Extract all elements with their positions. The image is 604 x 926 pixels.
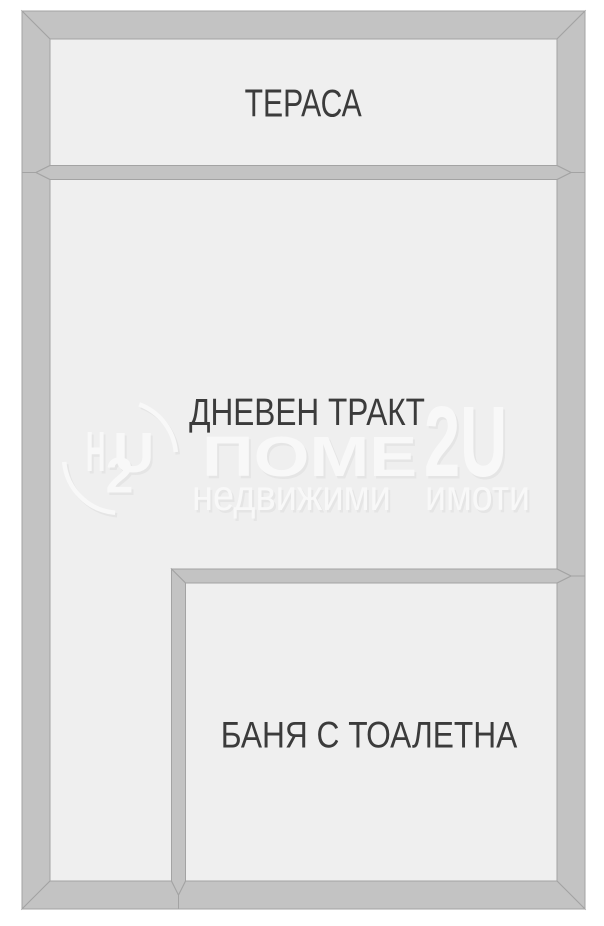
- svg-text:ТЕРАСА: ТЕРАСА: [245, 82, 363, 126]
- svg-text:имоти: имоти: [425, 471, 530, 520]
- svg-text:2: 2: [106, 448, 134, 504]
- svg-text:БАНЯ С ТОАЛЕТНА: БАНЯ С ТОАЛЕТНА: [221, 715, 518, 756]
- svg-text:H: H: [86, 421, 105, 484]
- svg-text:ДНЕВЕН ТРАКТ: ДНЕВЕН ТРАКТ: [189, 391, 425, 433]
- svg-text:недвижими: недвижими: [192, 471, 391, 520]
